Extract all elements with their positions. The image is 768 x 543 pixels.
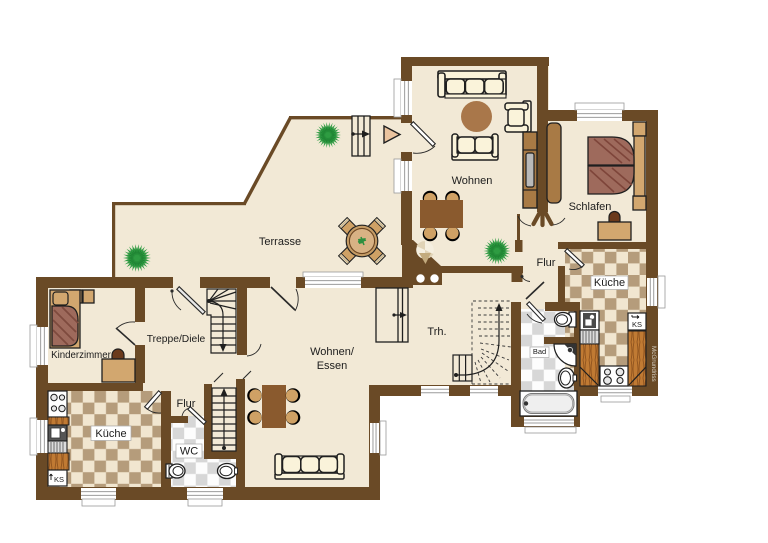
svg-text:Wohnen/: Wohnen/ (310, 346, 355, 358)
svg-text:McGrundriss: McGrundriss (650, 346, 657, 382)
svg-text:Flur: Flur (177, 398, 196, 410)
svg-text:Terrasse: Terrasse (259, 236, 301, 248)
svg-text:Küche: Küche (594, 277, 625, 289)
svg-text:Flur: Flur (537, 257, 556, 269)
svg-text:WC: WC (180, 446, 198, 458)
svg-text:Trh.: Trh. (427, 326, 446, 338)
svg-text:Kinderzimmer: Kinderzimmer (51, 350, 112, 361)
svg-text:KS: KS (632, 320, 642, 329)
svg-text:KS: KS (54, 475, 64, 484)
svg-text:Schlafen: Schlafen (569, 201, 612, 213)
svg-text:Küche: Küche (95, 428, 126, 440)
svg-text:Essen: Essen (317, 360, 348, 372)
svg-text:Treppe/Diele: Treppe/Diele (147, 334, 206, 345)
svg-text:Wohnen: Wohnen (452, 175, 493, 187)
svg-text:Bad: Bad (533, 347, 546, 356)
